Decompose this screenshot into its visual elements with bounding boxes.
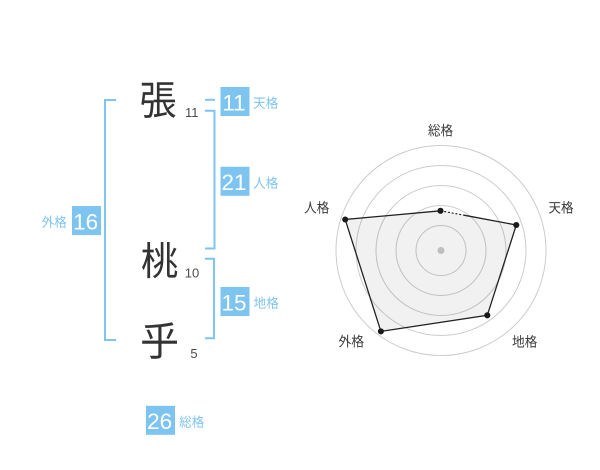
svg-text:26: 26 (147, 409, 172, 434)
svg-text:10: 10 (185, 265, 199, 280)
svg-text:16: 16 (73, 209, 98, 234)
svg-text:11: 11 (222, 90, 245, 115)
svg-text:11: 11 (185, 105, 199, 120)
svg-text:21: 21 (221, 170, 246, 195)
svg-text:15: 15 (221, 290, 246, 315)
svg-text:5: 5 (190, 346, 197, 361)
